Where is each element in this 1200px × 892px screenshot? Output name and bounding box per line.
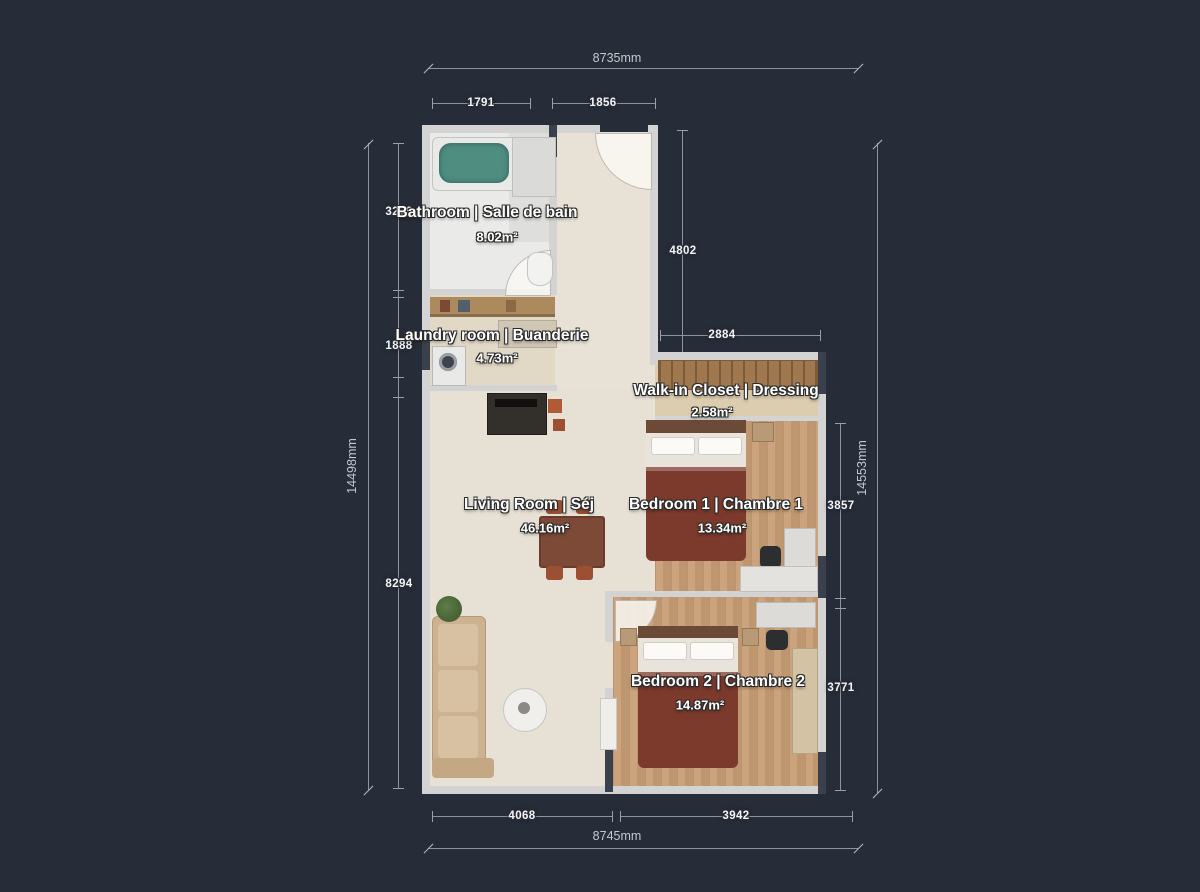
dim-top-seg1-tick-a [432,98,433,109]
bathroom-area: 8.02m² [476,230,517,245]
bathroom-vanity [512,137,556,197]
dim-left-tick-5 [393,397,404,398]
laundry-area: 4.73m² [476,351,517,366]
bed2-pillow-right [690,642,734,660]
dim-right-total-label: 14553mm [855,440,869,496]
bed1-blanket [646,467,746,561]
dim-right-tick-2 [835,598,846,599]
bed1-pillow-left [651,437,695,455]
dim-bottom-seg2-label: 3942 [722,810,749,822]
bed1-dresser [740,566,818,592]
media-item-1 [548,399,562,413]
media-item-2 [553,419,565,431]
closet-label: Walk-in Closet | Dressing [633,382,819,400]
bed2-pillow-left [643,642,687,660]
dim-left-total-label: 14498mm [345,438,359,494]
dim-top-seg1-label: 1791 [467,97,494,109]
bedroom2-label: Bedroom 2 | Chambre 2 [631,673,805,691]
dim-top-seg2-tick-b [655,98,656,109]
sofa-cushion-3 [438,716,478,758]
bedroom1-label: Bedroom 1 | Chambre 1 [629,496,803,514]
bed2-desk-chair [766,630,788,650]
dim-top-seg2-label: 1856 [589,97,616,109]
laundry-shelf-item-3 [506,300,516,312]
bed2-nightstand-right [742,628,759,646]
dim-top-total-label: 8735mm [593,51,642,65]
dim-right-tick-1 [835,423,846,424]
dim-bottom-total-label: 8745mm [593,829,642,843]
dim-inner-vertical-label: 4802 [669,245,696,257]
wall-accent-bed2-right [818,752,826,794]
dim-right-seg-line [840,423,841,790]
dim-inner-horizontal-line [660,335,820,336]
dim-inner-horizontal-label: 2884 [708,329,735,341]
dining-chair-4 [576,566,593,580]
sofa-chaise [432,758,494,778]
dim-left-seg-line [398,143,399,788]
bathroom-label: Bathroom | Salle de bain [397,204,578,222]
floor-plan-canvas: Bathroom | Salle de bain 8.02m² Laundry … [0,0,1200,892]
dim-left-tick-1 [393,143,404,144]
washing-machine-drum [439,353,457,371]
dim-top-seg2-tick-a [552,98,553,109]
sofa-cushion-1 [438,624,478,666]
dim-left-seg3-label: 8294 [385,578,412,590]
dim-left-tick-2 [393,290,404,291]
bed1-headboard [646,420,746,433]
dim-bottom-total-line [428,848,858,849]
dim-bottom-seg2-tick-a [620,811,621,822]
dim-inner-horizontal-tick-left [660,330,661,341]
dim-right-total-line [877,143,878,793]
dim-inner-horizontal-tick-right [820,330,821,341]
bedroom1-area: 13.34m² [698,521,746,536]
dim-inner-vertical-tick-top [677,130,688,131]
bed1-nightstand [752,422,774,442]
toilet [527,252,553,286]
tv-screen [495,399,537,407]
dim-bottom-seg1-tick-b [612,811,613,822]
bed2-wardrobe [792,648,818,754]
wall-top-left-wing [422,125,600,133]
wall-wing-top [650,352,826,360]
coffee-table-decor [518,702,530,714]
dim-top-total-line [428,68,858,69]
dining-chair-3 [546,566,563,580]
dim-right-seg2-label: 3771 [827,682,854,694]
living-area: 46.16m² [521,521,569,536]
laundry-label: Laundry room | Buanderie [396,327,589,345]
wall-left-outer [422,125,430,792]
bedroom2-area: 14.87m² [676,698,724,713]
closet-area: 2.58m² [691,405,732,420]
bed2-headboard [638,626,738,638]
sofa-cushion-2 [438,670,478,712]
dim-left-tick-3 [393,297,404,298]
bed2-desk [756,602,816,628]
dim-left-tick-4 [393,377,404,378]
dim-bottom-seg1-label: 4068 [508,810,535,822]
wall-accent-bed1-right [818,556,826,598]
bed2-nightstand-left [620,628,637,646]
dim-inner-vertical-line [682,130,683,358]
dim-left-total-line [368,143,369,790]
wall-bottom-outer [422,786,826,794]
bed1-desk-chair [760,546,781,568]
dim-right-seg1-label: 3857 [827,500,854,512]
laundry-shelf-item-2 [458,300,470,312]
bed1-pillow-right [698,437,742,455]
dim-bottom-seg1-tick-a [432,811,433,822]
dim-top-seg1-tick-b [530,98,531,109]
dim-right-tick-4 [835,790,846,791]
bedroom2-door-leaf [600,698,617,750]
dim-left-tick-6 [393,788,404,789]
living-label: Living Room | Séj [464,496,594,514]
wall-bed2-left [605,597,613,642]
plant [436,596,462,622]
bathtub-basin [439,143,509,183]
dim-right-tick-3 [835,608,846,609]
dim-bottom-seg2-tick-b [852,811,853,822]
laundry-shelf-item-1 [440,300,450,312]
